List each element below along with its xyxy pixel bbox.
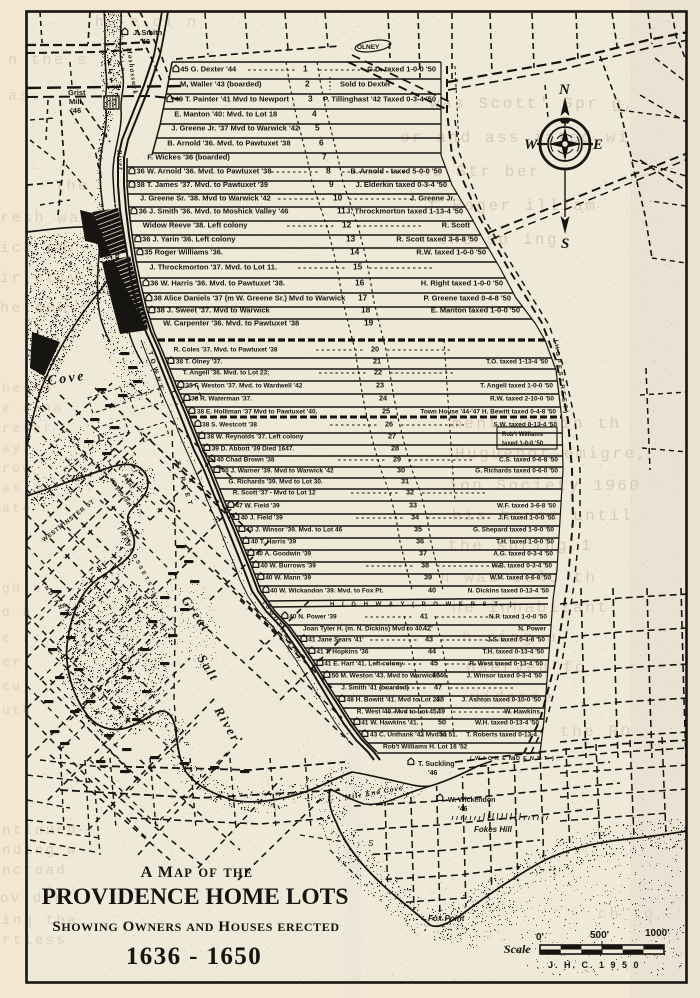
svg-text:1636 - 1650: 1636 - 1650 [126,943,262,970]
svg-text:23: 23 [376,380,384,389]
svg-text:W: W [524,137,539,153]
svg-text:Town House '44-'47 H. Bewitt: Town House '44-'47 H. Bewitt taxed 0-4-8… [420,408,556,415]
svg-text:15: 15 [353,262,363,272]
svg-text:29: 29 [393,454,401,463]
svg-text:24: 24 [379,393,388,402]
svg-text:43: 43 [425,634,433,643]
svg-text:40 J. Field '39: 40 J. Field '39 [241,514,283,521]
svg-text:31: 31 [401,476,409,485]
svg-text:34: 34 [411,512,420,521]
svg-text:11: 11 [337,206,346,216]
svg-text:35: 35 [414,524,422,533]
svg-text:J. Throckmorton taxed 1-13-4 ': J. Throckmorton taxed 1-13-4 '50 [346,207,463,216]
svg-text:A.G. taxed 0-3-4 '50: A.G. taxed 0-3-4 '50 [493,550,553,557]
svg-text:45: 45 [430,658,438,667]
svg-text:rtless: rtless [2,933,67,949]
svg-text:n the s: n the s [8,52,89,69]
svg-text:J. Smith '41 (boarded): J. Smith '41 (boarded) [341,684,409,691]
svg-text:E. Manton taxed 1-0-0 '50: E. Manton taxed 1-0-0 '50 [431,306,520,315]
svg-text:38 T. Olney '37.: 38 T. Olney '37. [176,358,223,365]
svg-text:was Scott' Spr g,: was Scott' Spr g, [430,95,636,113]
svg-text:50 M. Weston '43. Mvd to Warw: 50 M. Weston '43. Mvd to Warwick '46 [332,672,447,679]
svg-text:Fokes Hill: Fokes Hill [474,825,513,834]
svg-text:d h: d h [2,605,33,620]
svg-text:W.F. taxed 3-6-8 '50: W.F. taxed 3-6-8 '50 [497,502,556,509]
svg-text:N: N [558,82,571,98]
svg-text:40 N. Power '39: 40 N. Power '39 [289,613,337,620]
svg-text:E: E [592,137,603,153]
svg-text:er: er [2,655,23,670]
svg-text:36: 36 [416,536,424,545]
svg-text:12: 12 [342,220,352,230]
svg-text:40 T. Harris '39: 40 T. Harris '39 [251,538,297,545]
svg-text:48 H. Bowitt '41. Mvd to Lot: 48 H. Bowitt '41. Mvd to Lot 23. [347,696,442,703]
svg-text:R. Coles '37. Mvd. to Pawtuxe: R. Coles '37. Mvd. to Pawtuxet '38 [174,346,278,353]
svg-text:41 W. Hawkins '41.: 41 W. Hawkins '41. [361,719,418,726]
svg-text:J. Elderkin taxed 0-3-4 '50: J. Elderkin taxed 0-3-4 '50 [356,180,447,189]
svg-text:40 W. Mann '39: 40 W. Mann '39 [265,574,311,581]
svg-text:46: 46 [432,670,440,679]
svg-text:'46: '46 [71,106,81,115]
svg-text:J. Greene Jr.: J. Greene Jr. [410,194,455,203]
svg-text:R. Scott '37 - Mvd to Lot 12: R. Scott '37 - Mvd to Lot 12 [233,489,316,496]
svg-text:16: 16 [355,278,365,288]
svg-text:41 T. Hopkins '36: 41 T. Hopkins '36 [316,648,369,655]
svg-text:nding w: nding w [2,843,78,859]
svg-text:20: 20 [371,344,379,353]
svg-text:S: S [368,839,374,848]
svg-text:Widow Reeve '38. Left colony: Widow Reeve '38. Left colony [143,221,248,230]
svg-text:40 W. Wickandon '39. Mvd. to: 40 W. Wickandon '39. Mvd. to Fox Pt. [270,587,384,594]
svg-text:P. Greene taxed 0-4-8 '50: P. Greene taxed 0-4-8 '50 [423,294,511,303]
svg-text:2: 2 [305,79,310,89]
svg-text:36 J. Yarin '36. Left colony: 36 J. Yarin '36. Left colony [142,235,236,244]
svg-text:R.W. taxed 1-0-0 '50: R.W. taxed 1-0-0 '50 [416,248,486,257]
svg-text:R. Scott taxed 3-6-8 '50: R. Scott taxed 3-6-8 '50 [396,235,478,244]
svg-text:47 W. Field '39: 47 W. Field '39 [236,502,281,509]
svg-text:38 S. Westcott '38: 38 S. Westcott '38 [202,421,257,428]
svg-text:38 E. Holliman '37 Mvd to Pa: 38 E. Holliman '37 Mvd to Pawtuxet '40. [197,408,318,415]
svg-text:J.S. taxed 0-4-8 '50: J.S. taxed 0-4-8 '50 [487,636,545,643]
svg-text:13: 13 [346,234,356,244]
svg-text:M. Waller '43 (boarded): M. Waller '43 (boarded) [180,80,262,89]
svg-text:ato: ato [2,501,33,516]
svg-text:( W I C K E N D E N S T. ): ( W I C K E N D E N S T. ) [470,756,555,762]
svg-text:B. Arnold '36. Mvd. to Pawtuxe: B. Arnold '36. Mvd. to Pawtuxet '38 [167,139,290,148]
svg-text:R. Scott: R. Scott [442,221,471,230]
svg-text:E. Manton '40: Mvd. to Lot 18: E. Manton '40: Mvd. to Lot 18 [174,110,277,119]
svg-text:38: 38 [421,560,429,569]
svg-text:resh wa: resh wa [0,210,81,227]
svg-text:ch to: ch to [598,906,656,923]
svg-text:38 R. Waterman '37.: 38 R. Waterman '37. [191,395,252,402]
svg-text:N. Power: N. Power [518,625,546,632]
svg-text:R.W. taxed 2-10-0 '50: R.W. taxed 2-10-0 '50 [490,395,554,402]
svg-text:Sold to Dexter: Sold to Dexter [340,80,391,89]
svg-text:ion Society 1960: ion Society 1960 [448,477,642,495]
svg-text:45 G. Dexter '44: 45 G. Dexter '44 [180,65,237,74]
svg-text:48: 48 [436,694,444,703]
svg-text:42': 42' [423,623,433,632]
svg-text:50: 50 [438,717,446,726]
svg-text:Fox Point: Fox Point [428,914,465,923]
svg-text:G. Richards '39. Mvd to Lot 3: G. Richards '39. Mvd to Lot 30. [228,478,323,485]
svg-text:H I G H W A Y ( P O W E R: H I G H W A Y ( P O W E R S T. ) [330,602,515,608]
svg-text:'46: '46 [140,37,150,46]
svg-text:1000': 1000' [645,928,670,939]
svg-text:Grist: Grist [68,88,86,97]
svg-text:39: 39 [424,572,432,581]
svg-text:49: 49 [437,706,445,715]
svg-text:6: 6 [319,138,324,148]
svg-text:36 W. Harris '36. Mvd. to Paw: 36 W. Harris '36. Mvd. to Pawtuxet '38. [150,279,285,288]
svg-text:T.H. taxed 0-13-4 '50: T.H. taxed 0-13-4 '50 [482,648,544,655]
svg-text:3: 3 [308,94,313,104]
svg-text:4: 4 [312,109,317,119]
svg-text:500': 500' [590,930,609,941]
svg-text:22: 22 [374,367,382,376]
svg-text:OLNEY: OLNEY [357,44,380,51]
svg-text:19: 19 [364,318,374,328]
svg-text:44: 44 [428,646,437,655]
svg-text:17: 17 [358,293,368,303]
svg-text:40 A. Goodwin '39: 40 A. Goodwin '39 [256,550,312,557]
svg-text:9: 9 [329,179,334,189]
svg-text:T. Roberts taxed 0-13-4: T. Roberts taxed 0-13-4 [466,731,537,738]
svg-text:36 J. Smith '36. Mvd. to Mosh: 36 J. Smith '36. Mvd. to Moshick Valley … [139,207,289,216]
svg-text:ick rd: ick rd [0,240,69,257]
svg-text:8: 8 [326,166,331,176]
svg-text:40 J. Warner '39. Mvd to War: 40 J. Warner '39. Mvd to Warwick '42 [222,467,334,474]
svg-text:38 J. Sweet '37. Mvd to Warw: 38 J. Sweet '37. Mvd to Warwick [157,306,271,315]
svg-text:F. Wickes '36 (boarded): F. Wickes '36 (boarded) [147,153,230,162]
svg-text:N. Dickins taxed 0-13-4 '50: N. Dickins taxed 0-13-4 '50 [468,587,550,594]
svg-text:'46: '46 [458,806,468,813]
svg-text:36 W. Arnold '36. Mvd. to Paw: 36 W. Arnold '36. Mvd. to Pawtuxet '38 [137,167,272,176]
svg-text:cu: cu [2,679,23,694]
svg-text:J. Smith: J. Smith [133,28,163,37]
svg-text:10: 10 [333,193,343,203]
svg-text:41: 41 [420,611,428,620]
svg-text:P. Tillinghast '42 Taxed 0-3-: P. Tillinghast '42 Taxed 0-3-4 '50 [323,95,436,104]
svg-text:37: 37 [419,548,427,557]
svg-text:1: 1 [303,64,308,74]
svg-text:W.B. taxed 0-3-4 '50: W.B. taxed 0-3-4 '50 [492,562,553,569]
svg-text:ay: ay [2,441,23,456]
svg-text:39 D. Abbott '39 Died 16: 39 D. Abbott '39 Died 1647. [212,445,295,452]
svg-text:A MAP OF THE: A MAP OF THE [141,864,254,881]
svg-text:0': 0' [536,932,544,943]
svg-text:G. Shepard taxed 1-0-0 '50: G. Shepard taxed 1-0-0 '50 [473,526,554,533]
svg-text:41 Jane Sears '41': 41 Jane Sears '41' [308,636,364,643]
svg-text:c rr: c rr [2,631,43,646]
svg-text:21: 21 [373,356,381,365]
svg-text:51: 51 [439,729,447,738]
svg-text:30: 30 [397,465,405,474]
svg-text:Joan Tyler H. (m. N. Dickins): Joan Tyler H. (m. N. Dickins) Mvd to 40. [303,625,424,632]
svg-text:T.O. taxed 1-13-4 '50: T.O. taxed 1-13-4 '50 [486,358,548,365]
svg-text:PROVIDENCE HOME LOTS: PROVIDENCE HOME LOTS [42,884,349,910]
svg-text:ncroad: ncroad [2,863,67,879]
svg-text:T. Suckling: T. Suckling [418,761,455,768]
svg-text:C.S. taxed 0-6-8 '50: C.S. taxed 0-6-8 '50 [499,456,558,463]
svg-text:40 Chad Brown '38: 40 Chad Brown '38 [217,456,275,463]
svg-text:B. Arnold - taxed 5-0-0 '50: B. Arnold - taxed 5-0-0 '50 [350,167,442,176]
svg-text:W. Carpenter '36. Mvd. to Pawt: W. Carpenter '36. Mvd. to Pawtuxet '38 [163,319,299,328]
svg-text:'46: '46 [428,770,438,777]
svg-text:T. Angell taxed 1-0-0 '50: T. Angell taxed 1-0-0 '50 [480,382,553,389]
svg-text:S: S [561,236,569,252]
svg-text:26: 26 [385,419,393,428]
svg-text:J. Winsor taxed 0-3-4 '50: J. Winsor taxed 0-3-4 '50 [466,672,542,679]
svg-text:J. Greene Jr. '37 Mvd to Warwi: J. Greene Jr. '37 Mvd to Warwick '42 [171,124,299,133]
svg-text:38 T. James '37. Mvd. to Pawt: 38 T. James '37. Mvd. to Pawtuxet '39 [137,180,269,189]
svg-text:J.F. taxed 1-0-0 '50: J.F. taxed 1-0-0 '50 [498,514,555,521]
svg-text:47: 47 [434,682,442,691]
svg-text:32: 32 [406,487,414,496]
svg-text:Rob't Williams H. Lot 18 '52: Rob't Williams H. Lot 18 '52 [383,743,468,750]
svg-text:ntinued: ntinued [2,823,78,839]
svg-text:W.H. taxed 0-13-4 '50: W.H. taxed 0-13-4 '50 [475,719,539,726]
svg-text:Rob't Williams: Rob't Williams [502,432,544,438]
svg-text:43 J. Winsor '39. Mvd. to Lo: 43 J. Winsor '39. Mvd. to Lot 46 [246,526,343,533]
svg-text:18: 18 [361,305,371,315]
svg-text:W. Wickendon: W. Wickendon [448,797,495,804]
svg-text:e dona: e dona [2,401,64,416]
svg-text:J. Throckmorton '37. Mvd. to L: J. Throckmorton '37. Mvd. to Lot 11. [149,263,277,272]
svg-text:33: 33 [409,500,417,509]
svg-text:40: 40 [428,585,436,594]
svg-text:5: 5 [315,123,320,133]
svg-text:38 F. Weston '37. Mvd. to War: 38 F. Weston '37. Mvd. to Wardwell '42 [186,382,303,389]
svg-text:W.M. taxed 0-6-8 '50: W.M. taxed 0-6-8 '50 [490,574,552,581]
svg-text:taxed 1-0-0 '50: taxed 1-0-0 '50 [502,441,544,447]
svg-text:SHOWING OWNERS AND HOUSES EREC: SHOWING OWNERS AND HOUSES ERECTED [52,919,339,935]
svg-text:T. Angell '36. Mvd. to Lot 23;: T. Angell '36. Mvd. to Lot 23; [183,369,270,376]
svg-text:25: 25 [382,406,390,415]
svg-text:Scale: Scale [504,942,531,956]
svg-text:G.D. taxed 1-0-0 '50: G.D. taxed 1-0-0 '50 [367,65,436,74]
svg-text:49 T. Painter '41 Mvd to Newp: 49 T. Painter '41 Mvd to Newport [175,95,290,104]
svg-text:14: 14 [350,247,360,257]
svg-text:38 W. Reynolds '37. Left col: 38 W. Reynolds '37. Left colony [207,433,304,440]
svg-text:T.H. taxed 1-0-0 '50: T.H. taxed 1-0-0 '50 [496,538,554,545]
svg-text:H. Right taxed 1-0-0 '50: H. Right taxed 1-0-0 '50 [421,279,503,288]
svg-text:J. Greene Sr. '38. Mvd to Warw: J. Greene Sr. '38. Mvd to Warwick '42 [140,194,271,203]
svg-text:J. H. C. 1 9 5 0: J. H. C. 1 9 5 0 [548,960,641,970]
svg-text:J. Ashton taxed 0-10-0 '50: J. Ashton taxed 0-10-0 '50 [462,696,542,703]
svg-text:35 Roger Williams '36.: 35 Roger Williams '36. [144,248,223,257]
svg-text:Mill: Mill [69,97,82,106]
svg-text:G. Richards taxed 0-6-0 '50: G. Richards taxed 0-6-0 '50 [475,467,558,474]
svg-text:38 Alice Daniels '37 (m W. Gr: 38 Alice Daniels '37 (m W. Greene Sr.) M… [154,294,347,303]
svg-text:27: 27 [388,431,396,440]
svg-text:28: 28 [391,443,399,452]
svg-text:40 W. Burrows '39: 40 W. Burrows '39 [261,562,317,569]
